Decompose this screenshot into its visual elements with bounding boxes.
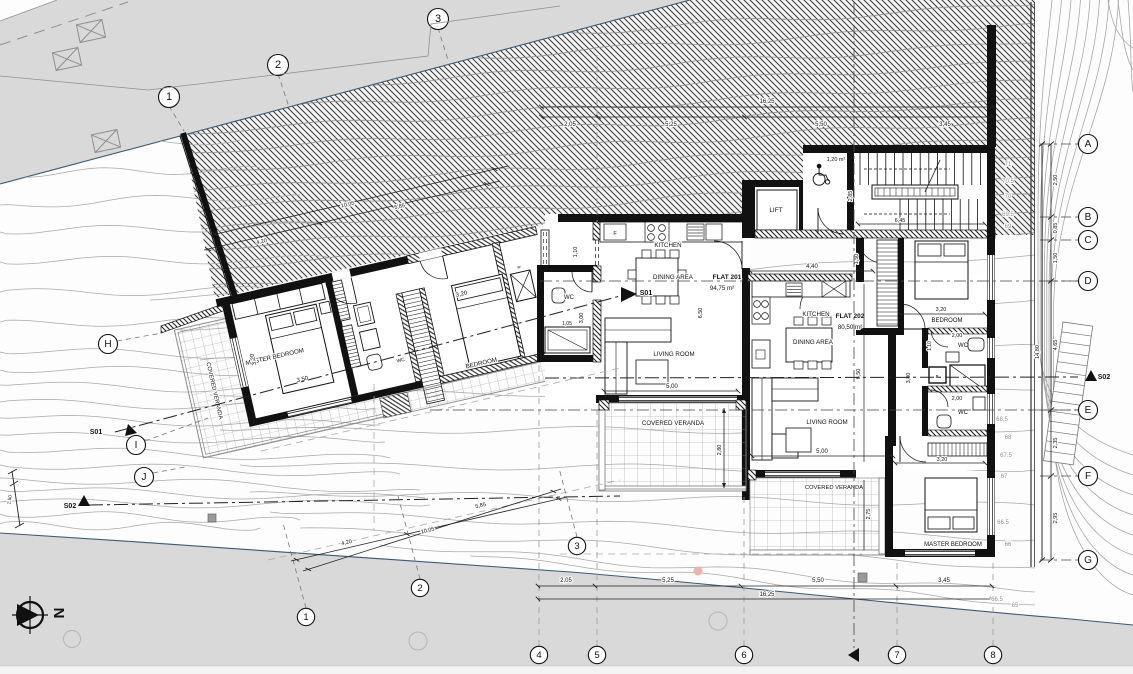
svg-text:68: 68 <box>1005 435 1012 441</box>
svg-text:5: 5 <box>594 650 599 661</box>
svg-text:5,50: 5,50 <box>812 578 824 584</box>
svg-text:DINING AREA: DINING AREA <box>653 274 694 281</box>
svg-text:G: G <box>1084 555 1092 566</box>
svg-text:4,65: 4,65 <box>1053 340 1059 351</box>
svg-text:5,00: 5,00 <box>666 384 678 390</box>
svg-text:J: J <box>142 472 147 483</box>
svg-text:1,50: 1,50 <box>1053 253 1059 264</box>
svg-text:1: 1 <box>166 91 172 103</box>
svg-text:3,20: 3,20 <box>936 307 947 313</box>
svg-text:94,75 m²: 94,75 m² <box>710 285 734 292</box>
svg-text:69.5: 69.5 <box>1002 212 1014 218</box>
svg-text:2,85: 2,85 <box>848 191 854 202</box>
svg-text:WC: WC <box>958 343 969 349</box>
svg-text:COVERED VERANDA: COVERED VERANDA <box>642 420 705 427</box>
svg-text:3,20: 3,20 <box>937 457 948 463</box>
svg-text:S01: S01 <box>640 290 653 297</box>
svg-text:0,85: 0,85 <box>1053 223 1059 234</box>
svg-text:2: 2 <box>417 583 422 594</box>
svg-text:3: 3 <box>574 541 579 552</box>
svg-text:MASTER BEDROOM: MASTER BEDROOM <box>924 542 982 548</box>
svg-text:16,25: 16,25 <box>759 99 775 105</box>
svg-text:5,50: 5,50 <box>815 122 827 128</box>
svg-text:16,25: 16,25 <box>759 592 775 598</box>
svg-text:4: 4 <box>536 650 541 661</box>
svg-text:70.5: 70.5 <box>1002 179 1014 185</box>
svg-text:2,95: 2,95 <box>1053 513 1059 524</box>
svg-text:LIFT: LIFT <box>769 207 782 214</box>
svg-text:LIVING ROOM: LIVING ROOM <box>806 419 847 426</box>
svg-text:3,80: 3,80 <box>906 373 912 384</box>
svg-text:B: B <box>1085 212 1092 223</box>
svg-text:1,10: 1,10 <box>927 341 933 351</box>
svg-text:F: F <box>1085 471 1091 482</box>
svg-text:14,80: 14,80 <box>1035 345 1041 359</box>
svg-text:FLAT 201: FLAT 201 <box>713 274 742 281</box>
svg-text:66.5: 66.5 <box>991 597 1003 603</box>
svg-text:I: I <box>135 440 138 451</box>
svg-text:2,05: 2,05 <box>564 122 576 128</box>
svg-text:65: 65 <box>1012 603 1019 609</box>
svg-text:8: 8 <box>990 650 995 661</box>
svg-text:H: H <box>104 339 111 350</box>
svg-text:5,25: 5,25 <box>662 578 674 584</box>
svg-text:2: 2 <box>275 59 281 71</box>
svg-text:2,00: 2,00 <box>952 396 963 402</box>
svg-text:N: N <box>50 608 67 619</box>
svg-text:KITCHEN: KITCHEN <box>802 311 829 318</box>
svg-text:3,45: 3,45 <box>938 578 950 584</box>
svg-text:2,80: 2,80 <box>717 445 723 456</box>
svg-text:2,05: 2,05 <box>560 578 572 584</box>
svg-text:S02: S02 <box>64 503 77 510</box>
svg-text:KITCHEN: KITCHEN <box>654 242 681 249</box>
svg-text:COVERED VERANDA: COVERED VERANDA <box>805 485 863 491</box>
svg-text:DINING AREA: DINING AREA <box>793 339 834 346</box>
svg-text:70: 70 <box>1005 194 1012 200</box>
svg-text:80,50 m²: 80,50 m² <box>838 324 862 331</box>
svg-text:3,00: 3,00 <box>579 313 585 324</box>
svg-text:D: D <box>1084 276 1091 287</box>
svg-text:3,45: 3,45 <box>939 122 951 128</box>
svg-text:69: 69 <box>1005 224 1012 230</box>
svg-text:67: 67 <box>1001 474 1008 480</box>
svg-text:66.5: 66.5 <box>997 520 1009 526</box>
svg-text:71: 71 <box>1005 162 1012 168</box>
svg-text:1,05: 1,05 <box>562 321 572 327</box>
svg-text:4,40: 4,40 <box>806 264 818 270</box>
svg-text:6,50: 6,50 <box>698 308 704 319</box>
svg-text:1,20 m²: 1,20 m² <box>827 157 846 163</box>
svg-text:67.5: 67.5 <box>1000 453 1012 459</box>
svg-text:5,25: 5,25 <box>665 122 677 128</box>
svg-text:2,50: 2,50 <box>1053 175 1059 186</box>
svg-text:C: C <box>1084 235 1091 246</box>
svg-text:2,35: 2,35 <box>1053 438 1059 449</box>
svg-text:WC: WC <box>564 295 575 301</box>
svg-text:1,50: 1,50 <box>854 254 860 265</box>
svg-text:5,00: 5,00 <box>816 449 828 455</box>
svg-text:1,10: 1,10 <box>573 247 579 258</box>
svg-text:66: 66 <box>1005 542 1012 548</box>
svg-text:FLAT 202: FLAT 202 <box>836 313 865 320</box>
svg-text:2,00: 2,00 <box>952 333 963 339</box>
svg-text:1: 1 <box>303 612 308 623</box>
svg-text:E: E <box>1085 405 1092 416</box>
svg-text:LIVING ROOM: LIVING ROOM <box>653 351 694 358</box>
svg-text:BEDROOM: BEDROOM <box>931 318 962 324</box>
svg-text:A: A <box>1085 139 1092 150</box>
svg-text:6: 6 <box>741 650 746 661</box>
svg-text:S01: S01 <box>90 429 103 436</box>
svg-text:68.5: 68.5 <box>996 417 1008 423</box>
svg-text:6,45: 6,45 <box>895 218 906 224</box>
svg-text:WC: WC <box>958 410 969 416</box>
svg-text:S02: S02 <box>1098 374 1111 381</box>
svg-text:7: 7 <box>894 650 899 661</box>
svg-text:2,75: 2,75 <box>866 509 872 520</box>
